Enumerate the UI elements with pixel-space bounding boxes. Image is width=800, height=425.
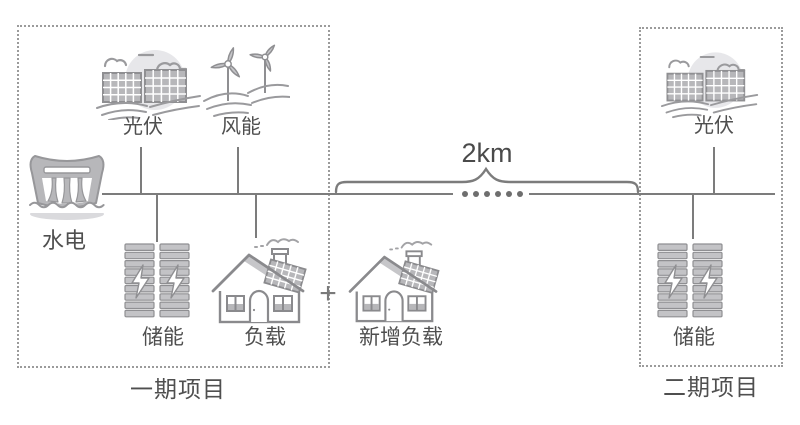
hydro-label: 水电 bbox=[24, 229, 104, 253]
solar-panel-icon bbox=[95, 44, 203, 120]
storage-label-phase2: 储能 bbox=[644, 326, 744, 349]
pv-label-phase1: 光伏 bbox=[103, 116, 183, 138]
house-load-icon bbox=[211, 234, 307, 324]
wind-label: 风能 bbox=[201, 116, 281, 138]
battery-storage-icon bbox=[124, 243, 190, 319]
connector-wind bbox=[237, 147, 239, 193]
plus-sign: + bbox=[308, 277, 348, 310]
new-load-label: 新增负载 bbox=[331, 326, 471, 349]
connector-storage-phase2 bbox=[692, 195, 694, 239]
connector-pv-phase1 bbox=[140, 147, 142, 193]
load-label: 负载 bbox=[215, 326, 315, 349]
storage-label-phase1: 储能 bbox=[113, 326, 213, 349]
house-load-icon bbox=[346, 237, 442, 323]
microgrid-diagram: 光伏 风能 水电 储能 负载 + 新增负载 2km 光伏 储能 一期项目 二期项… bbox=[0, 0, 800, 425]
phase2-title: 二期项目 bbox=[631, 375, 791, 400]
battery-storage-icon bbox=[657, 243, 723, 319]
distance-label: 2km bbox=[437, 139, 537, 169]
phase1-title: 一期项目 bbox=[98, 377, 258, 402]
hydro-dam-icon bbox=[25, 153, 109, 223]
pv-label-phase2: 光伏 bbox=[674, 115, 754, 137]
connector-load bbox=[255, 195, 257, 238]
connector-storage-phase1 bbox=[156, 195, 158, 242]
solar-panel-icon bbox=[660, 44, 760, 120]
connector-pv-phase2 bbox=[713, 147, 715, 193]
wind-turbine-icon bbox=[202, 33, 290, 118]
